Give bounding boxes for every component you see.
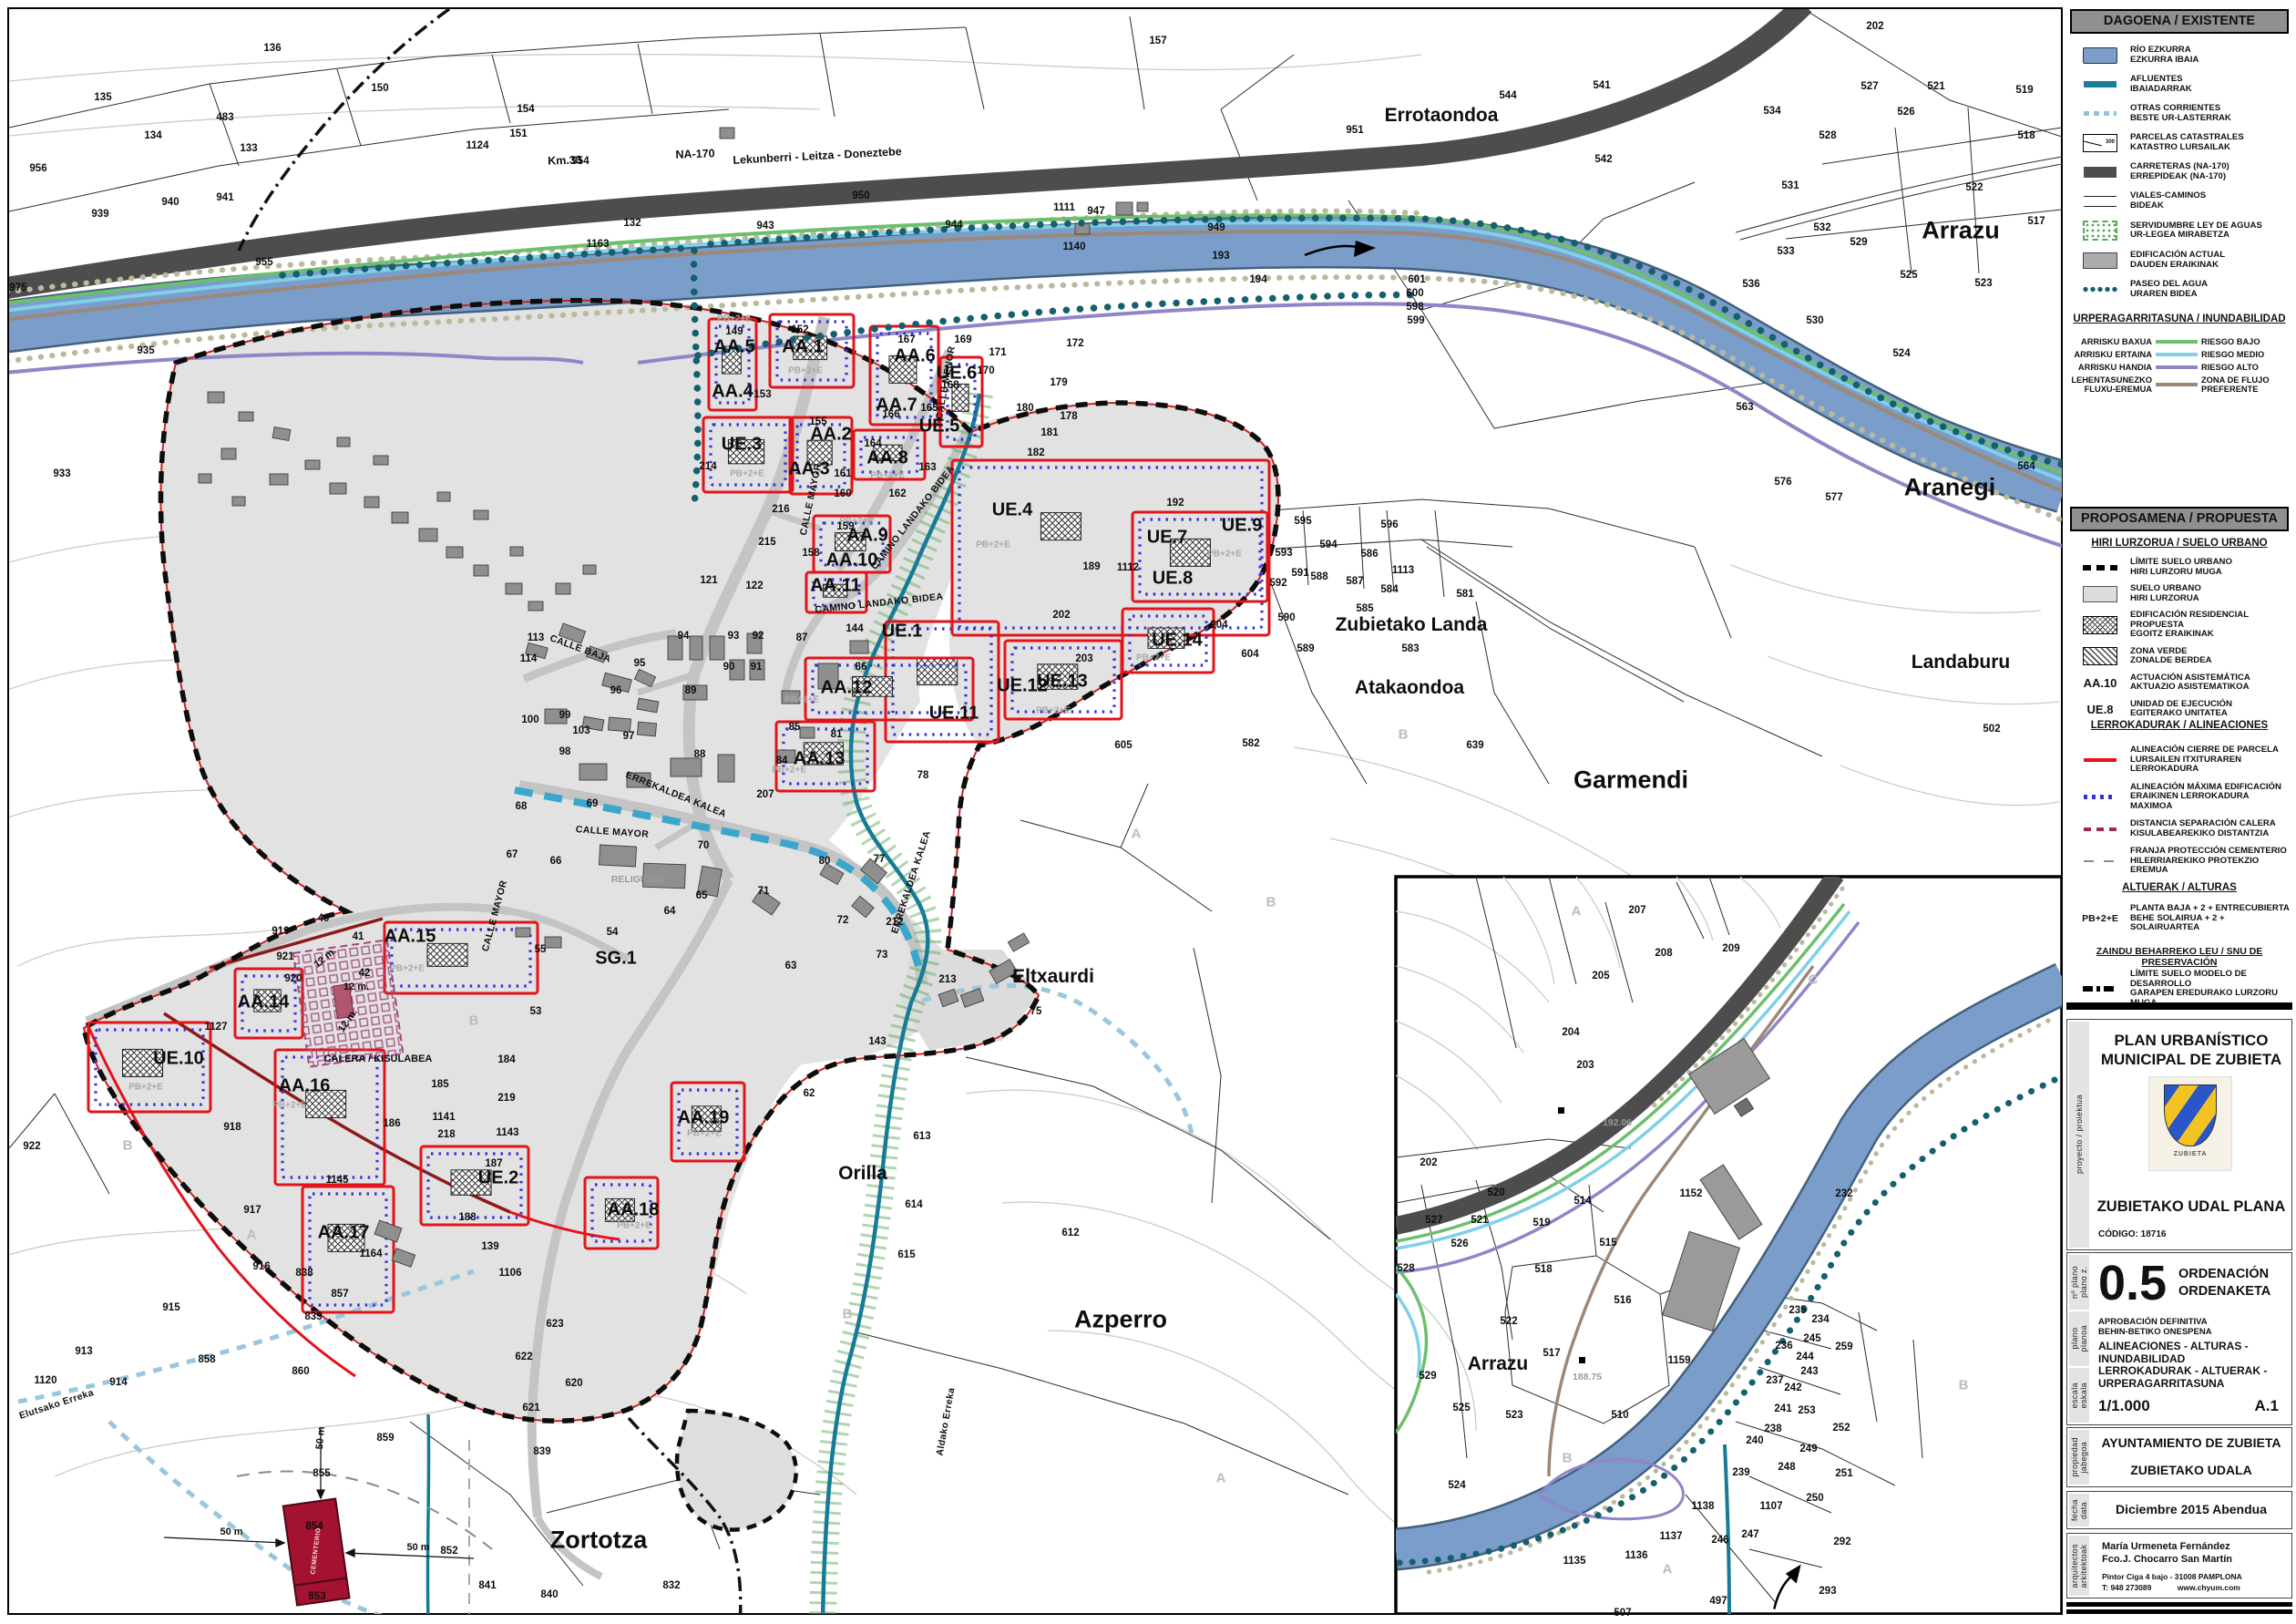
- building: [1008, 933, 1029, 951]
- existing-building-swatch: [2083, 252, 2117, 269]
- heights-item: PB+2+E PLANTA BAJA + 2 + ENTRECUBIERTABE…: [2070, 904, 2292, 933]
- heights-header: ALTUERAK / ALTURAS: [2070, 882, 2289, 893]
- building: [419, 529, 437, 541]
- building: [683, 685, 707, 700]
- alignments-header: LERROKADURAK / ALINEACIONES: [2070, 720, 2289, 731]
- building: [608, 717, 630, 732]
- legend-item: LÍMITE SUELO URBANOHIRI LURZORU MUGA: [2070, 558, 2292, 577]
- building: [221, 448, 236, 459]
- building: [474, 565, 488, 576]
- building: [818, 663, 838, 689]
- flood-legend-item: ARRISKU HANDIARIESGO ALTO: [2070, 363, 2292, 372]
- building: [1137, 202, 1148, 211]
- building: [750, 660, 764, 680]
- building: [583, 565, 596, 574]
- side-planno-label: nº plano plano z.: [2070, 1266, 2088, 1299]
- titleblock-sheet: nº plano plano z. plano planoa escala es…: [2066, 1252, 2292, 1425]
- building: [506, 583, 522, 594]
- building: [270, 474, 288, 485]
- building: [690, 636, 702, 660]
- building: [850, 641, 868, 653]
- plan-name-eu: ORDENAKETA: [2178, 1283, 2270, 1300]
- owner-eu: ZUBIETAKO UDALA: [2095, 1463, 2288, 1477]
- legend-panel: DAGOENA / EXISTENTE RÍO EZKURRAEZKURRA I…: [2065, 0, 2296, 1624]
- building: [599, 845, 636, 867]
- legend-item: AA.10ACTUACIÓN ASISTEMÁTICAAKTUAZIO ASIS…: [2070, 673, 2292, 693]
- bottom-bar-2: [2066, 1609, 2292, 1614]
- legend-existing-items: RÍO EZKURRAEZKURRA IBAIAAFLUENTESIBAIADA…: [2070, 46, 2292, 299]
- building: [718, 755, 734, 782]
- scale-value: 1/1.000: [2098, 1397, 2150, 1415]
- building: [374, 456, 388, 465]
- building: [545, 709, 567, 724]
- plan-title-line1: PLAN URBANÍSTICO: [2095, 1031, 2288, 1050]
- tributary-swatch: [2084, 81, 2117, 87]
- side-date-label: fecha data: [2070, 1499, 2088, 1521]
- legend-item: ZONA VERDEZONALDE BERDEA: [2070, 647, 2292, 666]
- zubieta-shield: ZUBIETA: [2148, 1076, 2232, 1171]
- legend-item: FRANJA PROTECCIÓN CEMENTERIOHILERRIAREKI…: [2070, 847, 2292, 876]
- building: [782, 691, 800, 704]
- shield-icon: [2164, 1084, 2217, 1146]
- limekiln-zone: [293, 940, 404, 1066]
- building: [710, 636, 724, 660]
- building: [446, 547, 463, 558]
- water-law-swatch: [2083, 221, 2117, 241]
- limekiln-distance-swatch: [2084, 827, 2117, 831]
- building: [637, 722, 656, 736]
- building: [698, 866, 723, 896]
- flood-header: URPERAGARRITASUNA / INUNDABILIDAD: [2070, 313, 2289, 324]
- architect-2: Fco.J. Chocarro San Martín: [2102, 1553, 2232, 1566]
- flood-legend-item: LEHENTASUNEZKO FLUXU-EREMUAZONA DE FLUJO…: [2070, 375, 2292, 394]
- building: [437, 492, 450, 501]
- building: [1116, 202, 1133, 215]
- legend-item: PARCELAS CATASTRALESKATASTRO LURSAILAK: [2070, 133, 2292, 152]
- parcel-closure-swatch: [2084, 758, 2117, 762]
- architects-phone: T: 948 273089: [2102, 1583, 2151, 1592]
- bottom-bar-1: [2066, 1602, 2292, 1607]
- building: [730, 660, 744, 680]
- building: [579, 764, 607, 780]
- flood-line-swatch: [2156, 365, 2198, 369]
- architects-address: Pintor Ciga 4 bajo - 31008 PAMPLONA: [2102, 1572, 2242, 1581]
- legend-existing-header: DAGOENA / EXISTENTE: [2070, 9, 2289, 34]
- divider-bar: [2066, 1002, 2292, 1010]
- plan-name-es: ORDENACIÓN: [2178, 1266, 2270, 1283]
- building: [305, 460, 320, 469]
- side-architects-label: arquitectos arkitektoak: [2070, 1544, 2088, 1588]
- sheet-name-eu: LERROKADURAK - ALTUERAK - URPERAGARRITAS…: [2098, 1365, 2286, 1390]
- other-streams-swatch: [2084, 111, 2117, 116]
- plan-code: CÓDIGO: 18716: [2098, 1229, 2166, 1239]
- flood-line-swatch: [2156, 383, 2198, 386]
- side-owner-label: propiedad jabegoa: [2070, 1437, 2088, 1477]
- inset-map: [1396, 875, 2065, 1614]
- titleblock-date: fecha data Diciembre 2015 Abendua: [2066, 1491, 2292, 1529]
- building: [364, 497, 379, 508]
- building: [668, 636, 682, 660]
- flood-legend-item: ARRISKU BAXUARIESGO BAJO: [2070, 337, 2292, 346]
- legend-item: AFLUENTESIBAIADARRAK: [2070, 75, 2292, 94]
- cemetery-strip-swatch: [2084, 860, 2117, 862]
- titleblock-architects: arquitectos arkitektoak María Urmeneta F…: [2066, 1533, 2292, 1598]
- flood-line-swatch: [2156, 353, 2198, 356]
- legend-item: SERVIDUMBRE LEY DE AGUASUR-LEGEA MIRABET…: [2070, 221, 2292, 241]
- cadastral-parcel-swatch: [2083, 134, 2117, 152]
- legend-item: DISTANCIA SEPARACIÓN CALERAKISULABEAREKI…: [2070, 819, 2292, 838]
- legend-item: ALINEACIÓN CIERRE DE PARCELALURSAILEN IT…: [2070, 745, 2292, 775]
- plan-subtitle: ZUBIETAKO UDAL PLANA: [2095, 1198, 2288, 1216]
- river-swatch: [2083, 47, 2117, 64]
- legend-proposal-header: PROPOSAMENA / PROPUESTA: [2070, 507, 2289, 531]
- building: [800, 727, 815, 738]
- flood-line-swatch: [2156, 340, 2198, 344]
- date-value: Diciembre 2015 Abendua: [2095, 1502, 2288, 1516]
- legend-item: PASEO DEL AGUAURAREN BIDEA: [2070, 280, 2292, 299]
- titleblock-project: proyecto / proiektua PLAN URBANÍSTICO MU…: [2066, 1019, 2292, 1250]
- side-project-label: proyecto / proiektua: [2075, 1095, 2084, 1174]
- pb2e-code: PB+2+E: [2070, 913, 2130, 924]
- legend-item: OTRAS CORRIENTESBESTE UR-LASTERRAK: [2070, 104, 2292, 123]
- building: [474, 510, 488, 519]
- sheet-ref: A.1: [2255, 1397, 2279, 1415]
- building: [337, 437, 350, 447]
- architect-1: María Urmeneta Fernández: [2102, 1540, 2232, 1553]
- approval-es: APROBACIÓN DEFINITIVA: [2098, 1317, 2212, 1327]
- building: [528, 601, 543, 611]
- paths-swatch: [2084, 196, 2117, 207]
- green-zone-swatch: [2083, 647, 2117, 665]
- map-canvas: [0, 0, 2296, 1624]
- sheet-name-es: ALINEACIONES - ALTURAS - INUNDABILIDAD: [2098, 1341, 2286, 1365]
- plan-title-line2: MUNICIPAL DE ZUBIETA: [2095, 1050, 2288, 1069]
- plan-number: 0.5: [2098, 1255, 2167, 1311]
- owner-es: AYUNTAMIENTO DE ZUBIETA: [2095, 1435, 2288, 1450]
- building: [777, 750, 795, 763]
- road-swatch: [2084, 167, 2117, 178]
- building: [556, 583, 570, 594]
- shield-caption: ZUBIETA: [2174, 1151, 2208, 1157]
- legend-item: CARRETERAS (NA-170)ERREPIDEAK (NA-170): [2070, 162, 2292, 181]
- legend-item: VIALES-CAMINOSBIDEAK: [2070, 191, 2292, 211]
- building: [545, 937, 561, 948]
- building: [627, 773, 651, 787]
- building: [392, 512, 408, 523]
- legend-item: RÍO EZKURRAEZKURRA IBAIA: [2070, 46, 2292, 65]
- legend-item: ALINEACIÓN MÁXIMA EDIFICACIÓNERAIKINEN L…: [2070, 783, 2292, 812]
- building: [516, 928, 530, 937]
- building: [239, 412, 253, 421]
- urban-land-swatch: [2083, 586, 2117, 602]
- snu-limit-swatch: [2083, 986, 2117, 992]
- legend-item: UE.8UNIDAD DE EJECUCIÓNEGITERAKO UNITATE…: [2070, 700, 2292, 719]
- building: [671, 758, 702, 776]
- side-plano-label: plano planoa: [2070, 1325, 2088, 1352]
- flood-items: ARRISKU BAXUARIESGO BAJOARRISKU ERTAINAR…: [2070, 337, 2292, 397]
- max-building-swatch: [2084, 795, 2117, 799]
- water-walk-swatch: [2082, 285, 2118, 293]
- legend-item: EDIFICACIÓN RESIDENCIAL PROPUESTAEGOITZ …: [2070, 611, 2292, 640]
- architects-web: www.chyum.com: [2178, 1583, 2240, 1592]
- building: [208, 392, 224, 403]
- approval-eu: BEHIN-BETIKO ONESPENA: [2098, 1327, 2212, 1337]
- building: [747, 633, 762, 653]
- building: [199, 474, 211, 483]
- titleblock-owner: propiedad jabegoa AYUNTAMIENTO DE ZUBIET…: [2066, 1427, 2292, 1487]
- building: [272, 427, 291, 441]
- building: [720, 128, 734, 139]
- plan-sheet: ErrotaondoaArrazuAranegiLandaburuZubieta…: [0, 0, 2296, 1624]
- building: [643, 863, 686, 889]
- snu-header: ZAINDU BEHARREKO LEU / SNU DE PRESERVACI…: [2070, 946, 2289, 968]
- proposed-building-swatch: [2083, 616, 2117, 634]
- building: [330, 483, 346, 494]
- building: [510, 547, 523, 556]
- building: [232, 497, 245, 506]
- flood-legend-item: ARRISKU ERTAINARIESGO MEDIO: [2070, 350, 2292, 359]
- urban-items: LÍMITE SUELO URBANOHIRI LURZORU MUGASUEL…: [2070, 558, 2292, 719]
- alignment-items: ALINEACIÓN CIERRE DE PARCELALURSAILEN IT…: [2070, 745, 2292, 876]
- urban-limit-swatch: [2083, 565, 2117, 570]
- urban-land-header: HIRI LURZORUA / SUELO URBANO: [2070, 538, 2289, 549]
- legend-item: SUELO URBANOHIRI LURZORUA: [2070, 584, 2292, 603]
- legend-item: EDIFICACIÓN ACTUALDAUDEN ERAIKINAK: [2070, 251, 2292, 270]
- side-escala-label: escala eskala: [2070, 1382, 2088, 1408]
